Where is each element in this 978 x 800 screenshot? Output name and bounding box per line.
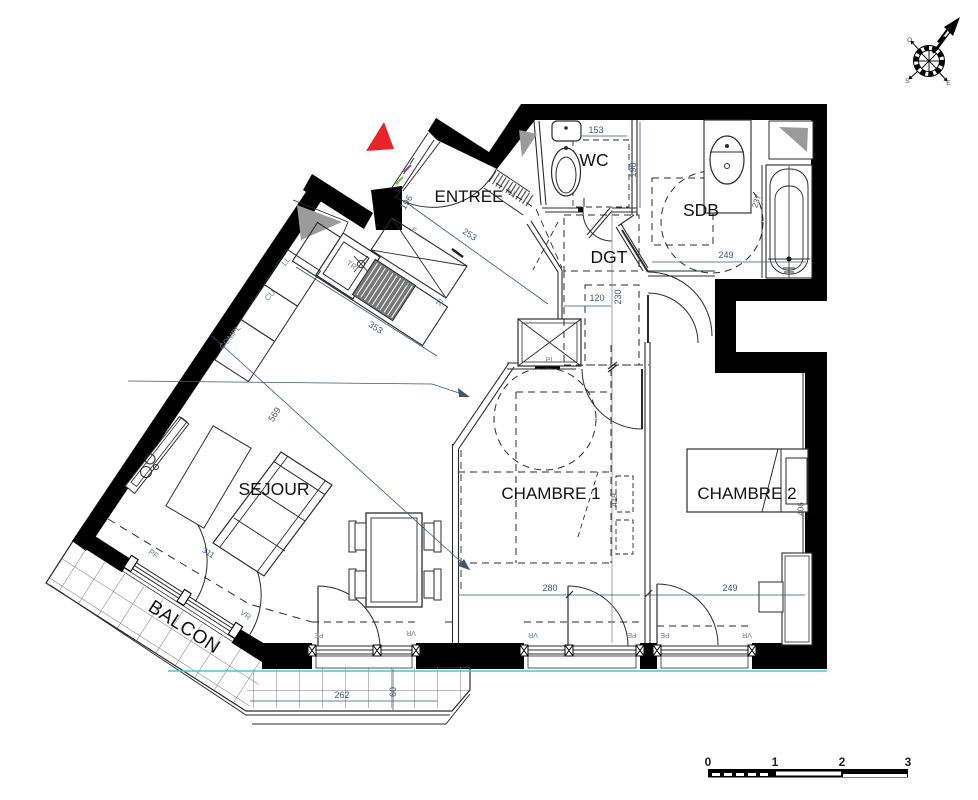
svg-text:PE: PE	[314, 631, 324, 638]
svg-text:249: 249	[722, 583, 737, 593]
svg-text:120: 120	[589, 293, 604, 303]
svg-text:ENTREE: ENTREE	[435, 187, 504, 206]
svg-text:1: 1	[772, 755, 779, 769]
svg-text:VR: VR	[406, 629, 416, 636]
svg-text:PE: PE	[660, 631, 670, 638]
svg-text:SEJOUR: SEJOUR	[239, 479, 310, 499]
svg-text:O: O	[907, 37, 912, 44]
svg-text:WC: WC	[579, 150, 608, 170]
svg-text:406: 406	[797, 502, 806, 516]
svg-text:CHAMBRE 2: CHAMBRE 2	[697, 484, 796, 503]
svg-text:249: 249	[718, 250, 733, 260]
svg-text:262: 262	[334, 690, 349, 700]
svg-text:SDB: SDB	[683, 200, 719, 220]
svg-text:VR: VR	[528, 631, 538, 638]
svg-text:0: 0	[705, 755, 712, 769]
svg-text:E: E	[946, 80, 951, 87]
svg-text:60: 60	[388, 687, 398, 697]
svg-text:153: 153	[588, 125, 603, 135]
svg-text:190: 190	[628, 162, 638, 177]
svg-text:CHAMBRE 1: CHAMBRE 1	[501, 484, 600, 503]
svg-text:VR: VR	[742, 631, 752, 638]
svg-text:3: 3	[905, 755, 912, 769]
svg-text:DGT: DGT	[591, 247, 628, 267]
svg-text:230: 230	[613, 289, 623, 304]
svg-text:2: 2	[839, 755, 846, 769]
svg-text:PE: PE	[627, 631, 637, 638]
svg-text:PI: PI	[546, 357, 553, 364]
svg-text:419: 419	[610, 493, 619, 507]
svg-text:280: 280	[542, 583, 557, 593]
svg-text:S: S	[905, 78, 910, 85]
